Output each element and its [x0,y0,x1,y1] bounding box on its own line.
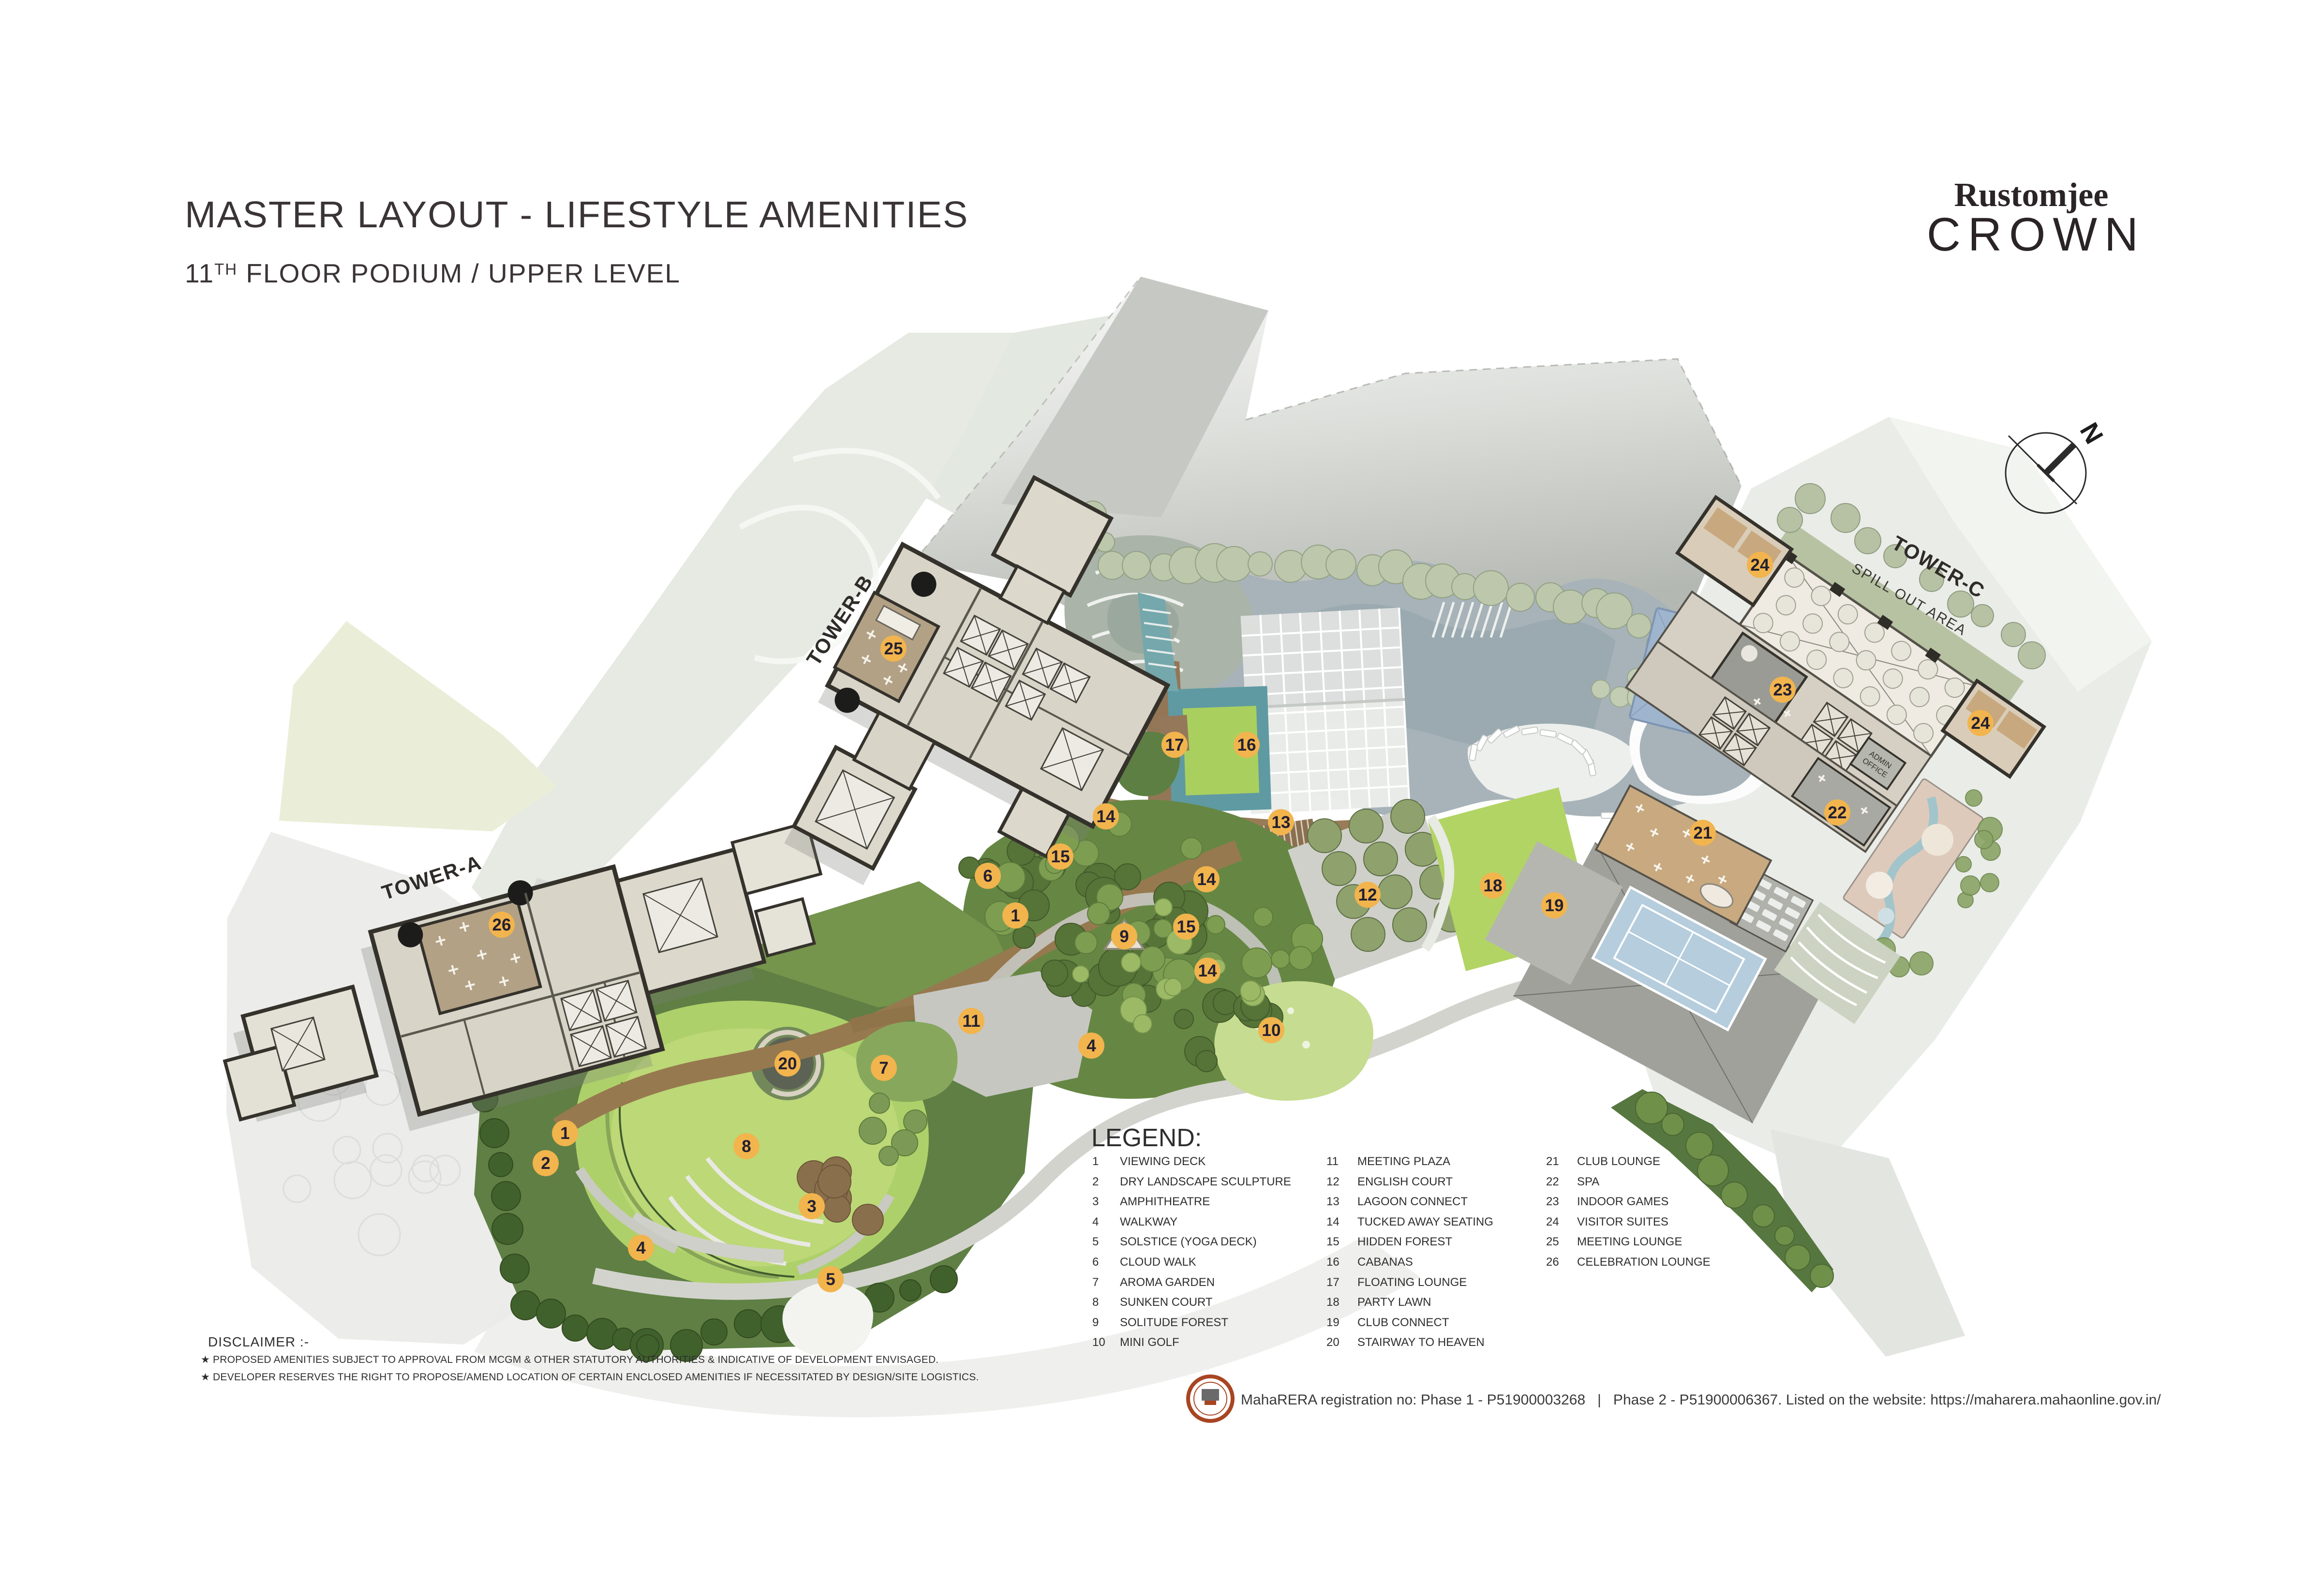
svg-text:24: 24 [1751,556,1770,575]
svg-text:MEETING PLAZA: MEETING PLAZA [1357,1155,1450,1168]
svg-text:14: 14 [1326,1215,1340,1228]
svg-text:8: 8 [1092,1296,1099,1309]
svg-text:11: 11 [963,1012,981,1031]
svg-text:17: 17 [1165,736,1184,754]
svg-text:5: 5 [1092,1235,1099,1248]
svg-text:VIEWING DECK: VIEWING DECK [1120,1155,1206,1168]
svg-text:20: 20 [778,1054,797,1073]
svg-text:26: 26 [492,916,511,934]
svg-text:21: 21 [1546,1155,1559,1168]
svg-text:24: 24 [1546,1215,1559,1228]
svg-text:CLUB LOUNGE: CLUB LOUNGE [1577,1155,1660,1168]
svg-text:MASTER LAYOUT - LIFESTYLE AMEN: MASTER LAYOUT - LIFESTYLE AMENITIES [185,194,968,236]
svg-text:11: 11 [1326,1155,1339,1168]
svg-text:10: 10 [1092,1336,1105,1349]
svg-text:SOLSTICE (YOGA DECK): SOLSTICE (YOGA DECK) [1120,1235,1257,1248]
svg-text:13: 13 [1272,813,1291,832]
svg-text:4: 4 [636,1239,646,1257]
svg-text:TUCKED AWAY SEATING: TUCKED AWAY SEATING [1357,1215,1493,1228]
svg-text:16: 16 [1326,1256,1340,1269]
svg-text:CABANAS: CABANAS [1357,1256,1413,1269]
svg-text:SUNKEN COURT: SUNKEN COURT [1120,1296,1213,1309]
svg-text:MahaRERA registration no: Phas: MahaRERA registration no: Phase 1 - P519… [1241,1392,2161,1408]
svg-text:DRY LANDSCAPE SCULPTURE: DRY LANDSCAPE SCULPTURE [1120,1175,1291,1188]
svg-text:6: 6 [1092,1256,1099,1269]
svg-text:2: 2 [541,1154,550,1173]
svg-text:12: 12 [1326,1175,1340,1188]
svg-text:14: 14 [1097,807,1116,826]
svg-text:MINI GOLF: MINI GOLF [1120,1336,1179,1349]
svg-text:20: 20 [1326,1336,1340,1349]
svg-text:23: 23 [1546,1195,1559,1208]
svg-text:24: 24 [1971,714,1990,733]
svg-text:25: 25 [884,639,903,658]
svg-text:SOLITUDE FOREST: SOLITUDE FOREST [1120,1316,1228,1329]
svg-text:CLOUD WALK: CLOUD WALK [1120,1256,1196,1269]
svg-text:FLOATING LOUNGE: FLOATING LOUNGE [1357,1276,1467,1289]
svg-text:1: 1 [1092,1155,1099,1168]
svg-text:21: 21 [1694,824,1712,842]
svg-text:15: 15 [1051,847,1070,866]
svg-text:5: 5 [826,1270,835,1289]
svg-text:15: 15 [1326,1235,1340,1248]
svg-text:19: 19 [1326,1316,1340,1329]
svg-text:8: 8 [742,1137,751,1156]
svg-text:1: 1 [560,1124,569,1143]
svg-text:2: 2 [1092,1175,1099,1188]
svg-text:22: 22 [1546,1175,1559,1188]
svg-text:CELEBRATION LOUNGE: CELEBRATION LOUNGE [1577,1256,1711,1269]
svg-text:STAIRWAY TO HEAVEN: STAIRWAY TO HEAVEN [1357,1336,1485,1349]
svg-text:26: 26 [1546,1256,1559,1269]
svg-text:17: 17 [1326,1276,1340,1289]
svg-text:LAGOON CONNECT: LAGOON CONNECT [1357,1195,1468,1208]
svg-text:1: 1 [1011,906,1020,925]
svg-text:22: 22 [1828,803,1847,822]
svg-text:7: 7 [879,1059,888,1078]
svg-text:HIDDEN FOREST: HIDDEN FOREST [1357,1235,1452,1248]
svg-text:19: 19 [1545,896,1564,915]
svg-text:15: 15 [1177,917,1196,936]
svg-text:11TH FLOOR PODIUM / UPPER LEVE: 11TH FLOOR PODIUM / UPPER LEVEL [185,258,681,288]
svg-text:10: 10 [1262,1021,1281,1040]
svg-text:VISITOR SUITES: VISITOR SUITES [1577,1215,1668,1228]
svg-text:25: 25 [1546,1235,1559,1248]
svg-text:4: 4 [1092,1215,1099,1228]
svg-text:SPA: SPA [1577,1175,1599,1188]
svg-text:23: 23 [1773,680,1792,699]
svg-text:CROWN: CROWN [1927,208,2145,261]
svg-text:★ PROPOSED AMENITIES SUBJECT: ★ PROPOSED AMENITIES SUBJECT TO APPROVAL… [201,1354,938,1365]
svg-text:12: 12 [1358,886,1377,904]
svg-text:MEETING LOUNGE: MEETING LOUNGE [1577,1235,1682,1248]
svg-text:13: 13 [1326,1195,1340,1208]
svg-text:PARTY LAWN: PARTY LAWN [1357,1296,1431,1309]
svg-text:WALKWAY: WALKWAY [1120,1215,1177,1228]
svg-text:4: 4 [1087,1036,1096,1055]
svg-text:3: 3 [1092,1195,1099,1208]
svg-text:ENGLISH COURT: ENGLISH COURT [1357,1175,1453,1188]
svg-text:9: 9 [1119,927,1129,946]
svg-text:AMPHITHEATRE: AMPHITHEATRE [1120,1195,1210,1208]
svg-text:18: 18 [1326,1296,1340,1309]
svg-text:LEGEND:: LEGEND: [1091,1124,1202,1152]
svg-text:CLUB CONNECT: CLUB CONNECT [1357,1316,1449,1329]
svg-text:14: 14 [1198,961,1217,980]
svg-text:7: 7 [1092,1276,1099,1289]
svg-text:9: 9 [1092,1316,1099,1329]
svg-text:INDOOR GAMES: INDOOR GAMES [1577,1195,1668,1208]
svg-text:6: 6 [983,867,992,886]
svg-text:18: 18 [1484,876,1503,895]
svg-text:AROMA GARDEN: AROMA GARDEN [1120,1276,1215,1289]
svg-text:★ DEVELOPER RESERVES THE RIGHT: ★ DEVELOPER RESERVES THE RIGHT TO PROPOS… [201,1372,979,1383]
svg-text:16: 16 [1237,736,1256,754]
svg-text:14: 14 [1197,870,1216,889]
svg-text:DISCLAIMER :-: DISCLAIMER :- [208,1334,309,1349]
svg-text:3: 3 [807,1197,816,1216]
